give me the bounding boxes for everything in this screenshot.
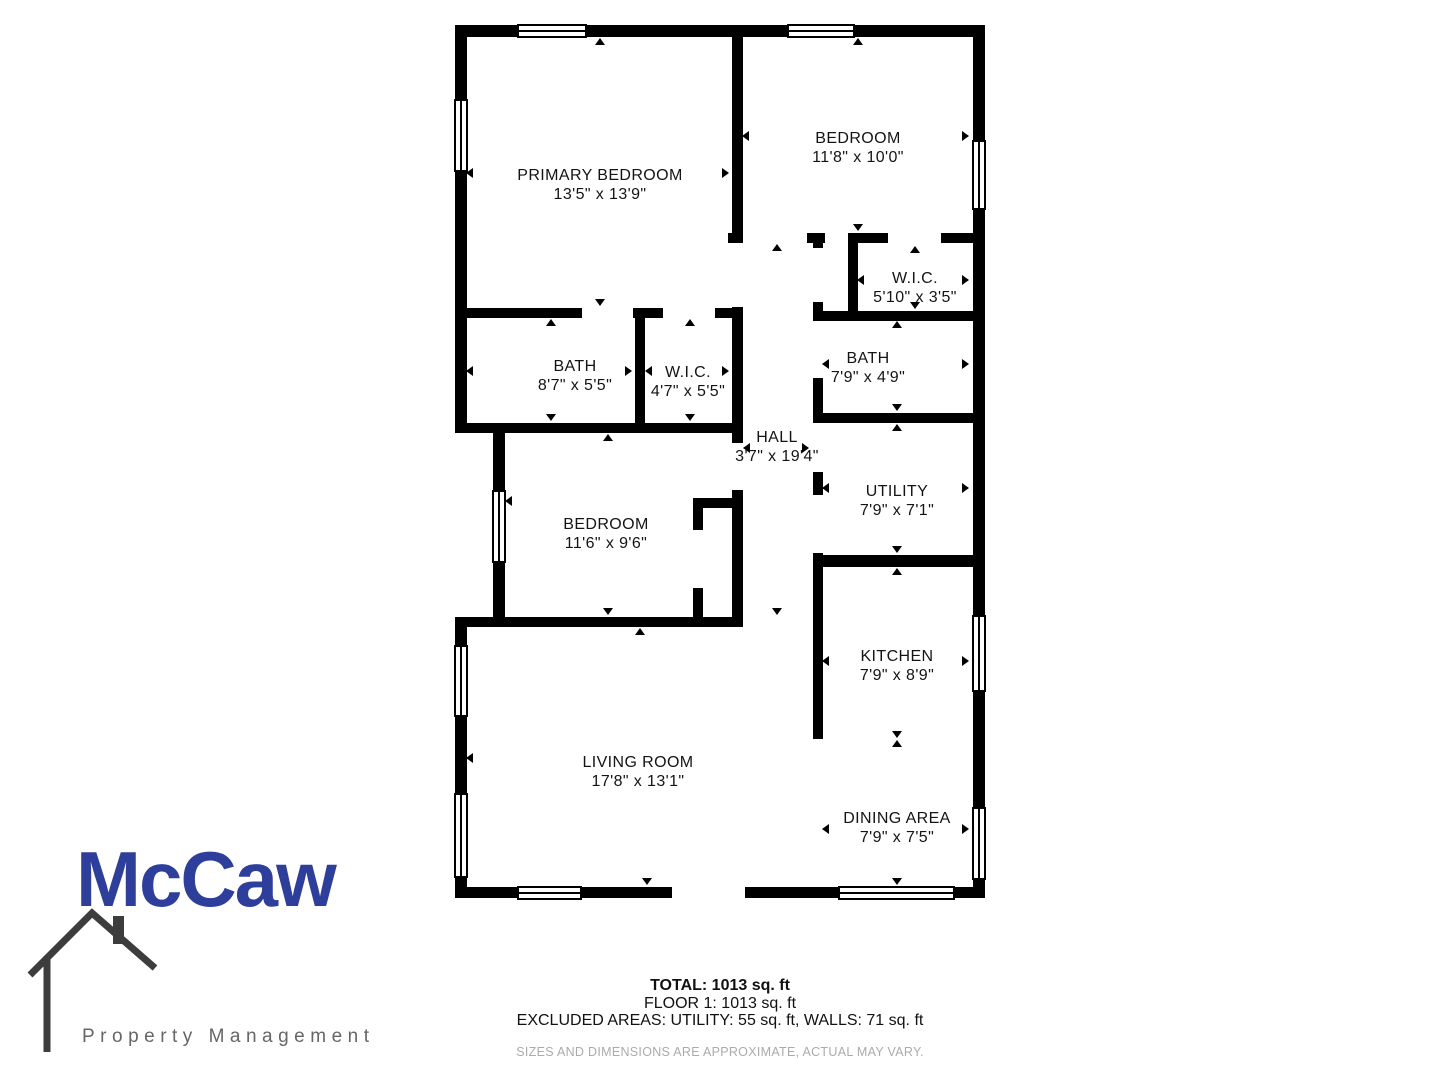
door-opening xyxy=(672,886,745,899)
room-dimensions: 17'8" x 13'1" xyxy=(582,772,693,791)
door-opening xyxy=(582,307,633,319)
dimension-arrow xyxy=(685,414,695,421)
room-label-wic-2: W.I.C.5'10" x 3'5" xyxy=(873,269,957,307)
door-opening xyxy=(888,232,941,244)
door-opening xyxy=(812,321,824,378)
dimension-arrow xyxy=(892,740,902,747)
dimension-arrow xyxy=(822,824,829,834)
dimension-arrow xyxy=(595,38,605,45)
dimension-arrow xyxy=(635,628,645,635)
dimension-arrow xyxy=(822,359,829,369)
floor-area: FLOOR 1: 1013 sq. ft xyxy=(0,995,1440,1012)
dimension-arrow xyxy=(962,483,969,493)
wall xyxy=(813,413,973,423)
door-opening xyxy=(812,495,824,553)
total-area: TOTAL: 1013 sq. ft xyxy=(0,976,1440,995)
dimension-arrow xyxy=(822,483,829,493)
room-dimensions: 5'10" x 3'5" xyxy=(873,288,957,307)
window xyxy=(972,140,986,210)
dimension-arrow xyxy=(892,878,902,885)
room-dimensions: 11'6" x 9'6" xyxy=(563,534,648,553)
summary-footer: TOTAL: 1013 sq. ft FLOOR 1: 1013 sq. ft … xyxy=(0,976,1440,1059)
dimension-arrow xyxy=(892,424,902,431)
window xyxy=(517,24,587,38)
room-dimensions: 4'7" x 5'5" xyxy=(651,382,725,401)
dimension-arrow xyxy=(822,656,829,666)
wall xyxy=(813,555,973,567)
dimension-arrow xyxy=(962,359,969,369)
room-label-living-room: LIVING ROOM17'8" x 13'1" xyxy=(582,753,693,791)
room-dimensions: 7'9" x 8'9" xyxy=(860,666,934,685)
window xyxy=(517,886,582,900)
dimension-arrow xyxy=(857,275,864,285)
room-dimensions: 13'5" x 13'9" xyxy=(517,185,682,204)
door-opening xyxy=(692,530,704,588)
room-name: KITCHEN xyxy=(860,647,934,666)
dimension-arrow xyxy=(892,546,902,553)
dimension-arrow xyxy=(772,608,782,615)
wall xyxy=(848,237,858,311)
room-label-bedroom-3: BEDROOM11'6" x 9'6" xyxy=(563,515,648,553)
room-dimensions: 7'9" x 4'9" xyxy=(831,368,905,387)
window xyxy=(454,793,468,878)
dimension-arrow xyxy=(595,299,605,306)
room-label-utility: UTILITY7'9" x 7'1" xyxy=(860,482,934,520)
dimension-arrow xyxy=(546,319,556,326)
dimension-arrow xyxy=(742,131,749,141)
window xyxy=(454,645,468,717)
room-label-kitchen: KITCHEN7'9" x 8'9" xyxy=(860,647,934,685)
dimension-arrow xyxy=(466,366,473,376)
window xyxy=(454,99,468,172)
room-label-wic-1: W.I.C.4'7" x 5'5" xyxy=(651,363,725,401)
dimension-arrow xyxy=(772,244,782,251)
room-label-bedroom-2: BEDROOM11'8" x 10'0" xyxy=(812,129,904,167)
window xyxy=(972,615,986,692)
dimension-arrow xyxy=(466,753,473,763)
excluded-areas: EXCLUDED AREAS: UTILITY: 55 sq. ft, WALL… xyxy=(0,1012,1440,1029)
dimension-arrow xyxy=(546,414,556,421)
room-label-hall: HALL3'7" x 19'4" xyxy=(735,428,819,466)
room-name: W.I.C. xyxy=(873,269,957,288)
dimension-arrow xyxy=(892,568,902,575)
room-dimensions: 11'8" x 10'0" xyxy=(812,148,904,167)
logo-name: McCaw xyxy=(76,834,335,925)
room-dimensions: 7'9" x 7'5" xyxy=(843,828,951,847)
dimension-arrow xyxy=(722,168,729,178)
room-name: PRIMARY BEDROOM xyxy=(517,166,682,185)
dimension-arrow xyxy=(892,404,902,411)
room-name: BEDROOM xyxy=(563,515,648,534)
room-label-bath-2: BATH7'9" x 4'9" xyxy=(831,349,905,387)
room-label-bath-1: BATH8'7" x 5'5" xyxy=(538,357,612,395)
room-name: W.I.C. xyxy=(651,363,725,382)
room-name: BATH xyxy=(538,357,612,376)
dimension-arrow xyxy=(853,224,863,231)
room-dimensions: 8'7" x 5'5" xyxy=(538,376,612,395)
dimension-arrow xyxy=(685,319,695,326)
dimension-arrow xyxy=(625,366,632,376)
wall xyxy=(455,423,743,433)
dimension-arrow xyxy=(910,246,920,253)
room-dimensions: 7'9" x 7'1" xyxy=(860,501,934,520)
door-opening xyxy=(825,232,848,244)
dimension-arrow xyxy=(892,321,902,328)
dimension-arrow xyxy=(466,168,473,178)
door-opening xyxy=(743,232,807,244)
window xyxy=(787,24,855,38)
door-opening xyxy=(663,307,715,319)
room-name: HALL xyxy=(735,428,819,447)
room-name: LIVING ROOM xyxy=(582,753,693,772)
dimension-arrow xyxy=(853,38,863,45)
wall xyxy=(813,311,973,321)
window xyxy=(838,886,955,900)
dimension-arrow xyxy=(962,131,969,141)
wall xyxy=(813,567,823,739)
dimension-arrow xyxy=(962,656,969,666)
dimension-arrow xyxy=(603,434,613,441)
disclaimer-text: SIZES AND DIMENSIONS ARE APPROXIMATE, AC… xyxy=(0,1045,1440,1059)
dimension-arrow xyxy=(892,731,902,738)
window xyxy=(972,807,986,880)
dimension-arrow xyxy=(642,878,652,885)
room-name: DINING AREA xyxy=(843,809,951,828)
room-name: UTILITY xyxy=(860,482,934,501)
room-dimensions: 3'7" x 19'4" xyxy=(735,447,819,466)
dimension-arrow xyxy=(603,608,613,615)
dimension-arrow xyxy=(962,824,969,834)
room-label-primary-bedroom: PRIMARY BEDROOM13'5" x 13'9" xyxy=(517,166,682,204)
room-name: BEDROOM xyxy=(812,129,904,148)
window xyxy=(492,490,506,563)
room-label-dining-area: DINING AREA7'9" x 7'5" xyxy=(843,809,951,847)
dimension-arrow xyxy=(505,496,512,506)
wall xyxy=(635,318,645,423)
room-name: BATH xyxy=(831,349,905,368)
door-opening xyxy=(812,248,824,302)
dimension-arrow xyxy=(962,275,969,285)
